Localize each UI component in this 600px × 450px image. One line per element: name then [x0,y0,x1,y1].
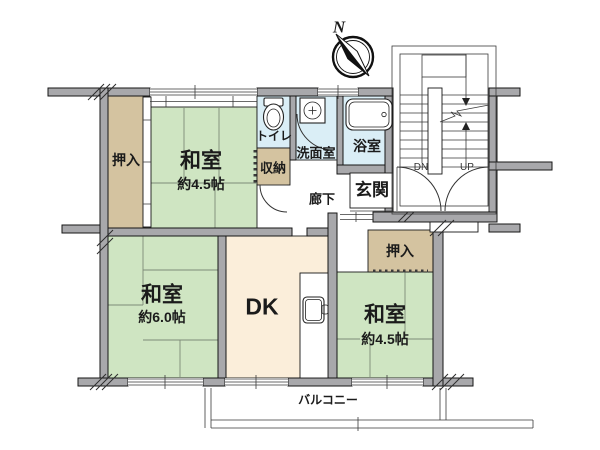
washitsu-bottom-left-area: 約6.0帖 [138,310,185,324]
kitchen-sink-icon [303,297,328,323]
wall-washitsu-dk [218,236,226,378]
stair-center-rail [428,88,442,174]
corridor-label: 廊下 [309,193,335,206]
stair-arrow-down [462,98,470,106]
stair-landing [422,55,466,77]
closet-left-label: 押入 [112,153,140,167]
wall-top-stub [489,88,520,96]
wall-top-3 [358,88,393,96]
balcony-label: バルコニー [298,394,358,406]
wall-left-stub [62,225,100,233]
wall-toilet-washroom [290,96,296,160]
stair-arrow-up [462,122,470,130]
compass-north-label: N [333,19,345,36]
wall-left [100,88,108,386]
wall-dk-washitsu-right [328,213,337,378]
storage-door-arc [260,185,287,212]
closet-right-label: 押入 [386,244,414,258]
wall-right-stub-bottom [489,224,520,232]
stairs-up-label: UP [460,163,474,173]
stair-lower-landing [430,222,478,232]
stairwell-outer [392,46,496,214]
bathroom-label: 浴室 [353,139,381,153]
wall-washroom-bath [337,96,343,165]
wall-bottom-2 [203,378,225,386]
wall-middle-1 [108,228,292,236]
wall-right [433,222,443,386]
stairs [392,46,496,232]
entrance-door-right-arc [445,167,489,211]
washitsu-bottom-left-room [108,236,218,378]
slide-door-washitsu-right [340,212,373,222]
wall-top-2 [257,88,318,96]
floor-plan: 和室 約4.5帖 和室 約6.0帖 和室 約4.5帖 DK 押入 押入 収納 ト… [0,0,600,450]
washitsu-bottom-right-label: 和室 [364,305,406,326]
kitchen-counter [300,273,328,378]
genkan-label: 玄関 [355,182,389,199]
washitsu-top-left-label: 和室 [180,151,222,172]
wall-bottom-3 [288,378,352,386]
toilet-label: トイレ [256,130,292,142]
washitsu-bottom-left-label: 和室 [141,285,183,306]
storage-label: 収納 [260,162,286,175]
window-track-washitsu-tl [150,96,257,107]
washroom-label: 洗面室 [296,147,335,160]
stair-break-line [440,105,489,122]
washing-machine-icon [300,98,325,123]
floor-plan-drawing [0,0,600,450]
stair-treads [400,95,488,167]
washitsu-bottom-right-area: 約4.5帖 [361,332,408,346]
wall-right-stub-mid [489,162,552,170]
stairs-down-label: DN [414,163,428,173]
washitsu-top-left-area: 約4.5帖 [177,177,224,191]
entrance-door-leaves [397,167,489,211]
toilet-icon [264,98,284,130]
compass-icon [333,34,373,77]
wall-bottom-1 [78,378,128,386]
balcony-outline [205,388,533,431]
dk-label: DK [245,296,278,319]
bathtub-icon [346,99,392,130]
